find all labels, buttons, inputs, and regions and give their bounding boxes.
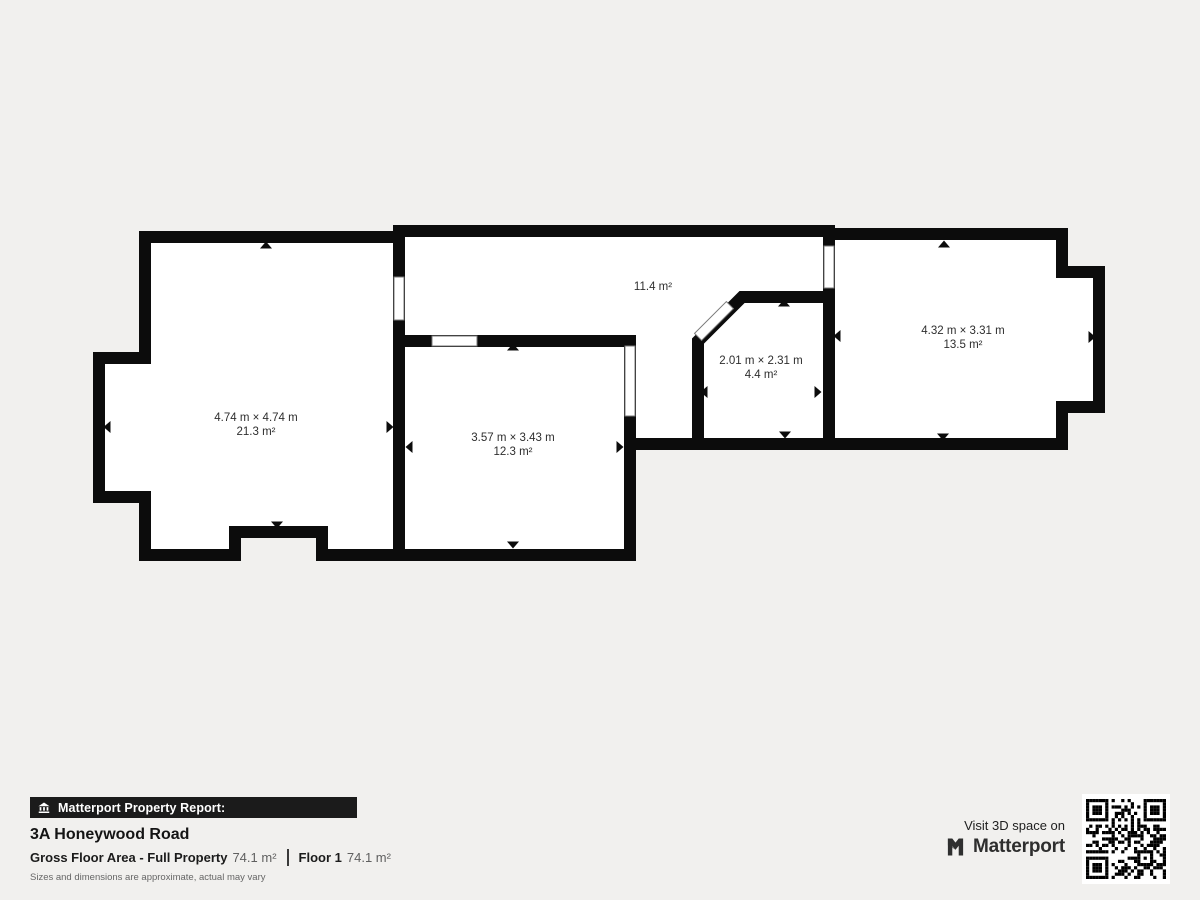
floor-label: Floor 1: [299, 850, 342, 865]
room-label-middle: 3.57 m × 3.43 m 12.3 m²: [471, 431, 554, 459]
page: 4.74 m × 4.74 m 21.3 m² 11.4 m² 3.57 m ×…: [0, 0, 1200, 900]
room-label-small: 2.01 m × 2.31 m 4.4 m²: [719, 354, 802, 382]
room-dimensions: 4.74 m × 4.74 m: [214, 411, 297, 425]
floor-area-line: Gross Floor Area - Full Property 74.1 m²…: [30, 849, 391, 866]
door-left-room: [394, 277, 404, 320]
rooms: [99, 231, 1099, 555]
divider: [287, 849, 289, 866]
disclaimer-text: Sizes and dimensions are approximate, ac…: [30, 872, 266, 883]
room-dimensions: 4.32 m × 3.31 m: [921, 324, 1004, 338]
report-bar-label: Matterport Property Report:: [58, 801, 225, 815]
matterport-logo-icon: [944, 836, 967, 858]
door-middle-room-top: [432, 336, 477, 346]
room-area: 11.4 m²: [634, 280, 672, 294]
matterport-wordmark: Matterport: [973, 836, 1065, 858]
room-area: 12.3 m²: [471, 445, 554, 459]
room-label-right: 4.32 m × 3.31 m 13.5 m²: [921, 324, 1004, 352]
room-area: 4.4 m²: [719, 368, 802, 382]
floor-value: 74.1 m²: [347, 850, 391, 865]
qr-code: [1082, 794, 1170, 884]
room-area: 21.3 m²: [214, 425, 297, 439]
report-bar: Matterport Property Report:: [30, 797, 357, 818]
window-middle-room-right: [625, 346, 635, 416]
property-address: 3A Honeywood Road: [30, 826, 189, 844]
visit-3d-text: Visit 3D space on: [964, 818, 1065, 833]
room-left-outline: [99, 237, 399, 555]
room-area: 13.5 m²: [921, 338, 1004, 352]
house-icon: [37, 801, 51, 815]
qr-code-pattern: [1086, 799, 1166, 879]
gfa-value: 74.1 m²: [232, 850, 276, 865]
room-dimensions: 3.57 m × 3.43 m: [471, 431, 554, 445]
door-right-room: [824, 246, 834, 288]
matterport-brand: Matterport: [944, 836, 1065, 858]
floor-plan: [0, 0, 1200, 900]
room-label-left: 4.74 m × 4.74 m 21.3 m²: [214, 411, 297, 439]
gfa-label: Gross Floor Area - Full Property: [30, 850, 227, 865]
room-dimensions: 2.01 m × 2.31 m: [719, 354, 802, 368]
room-label-hallway: 11.4 m²: [634, 280, 672, 294]
